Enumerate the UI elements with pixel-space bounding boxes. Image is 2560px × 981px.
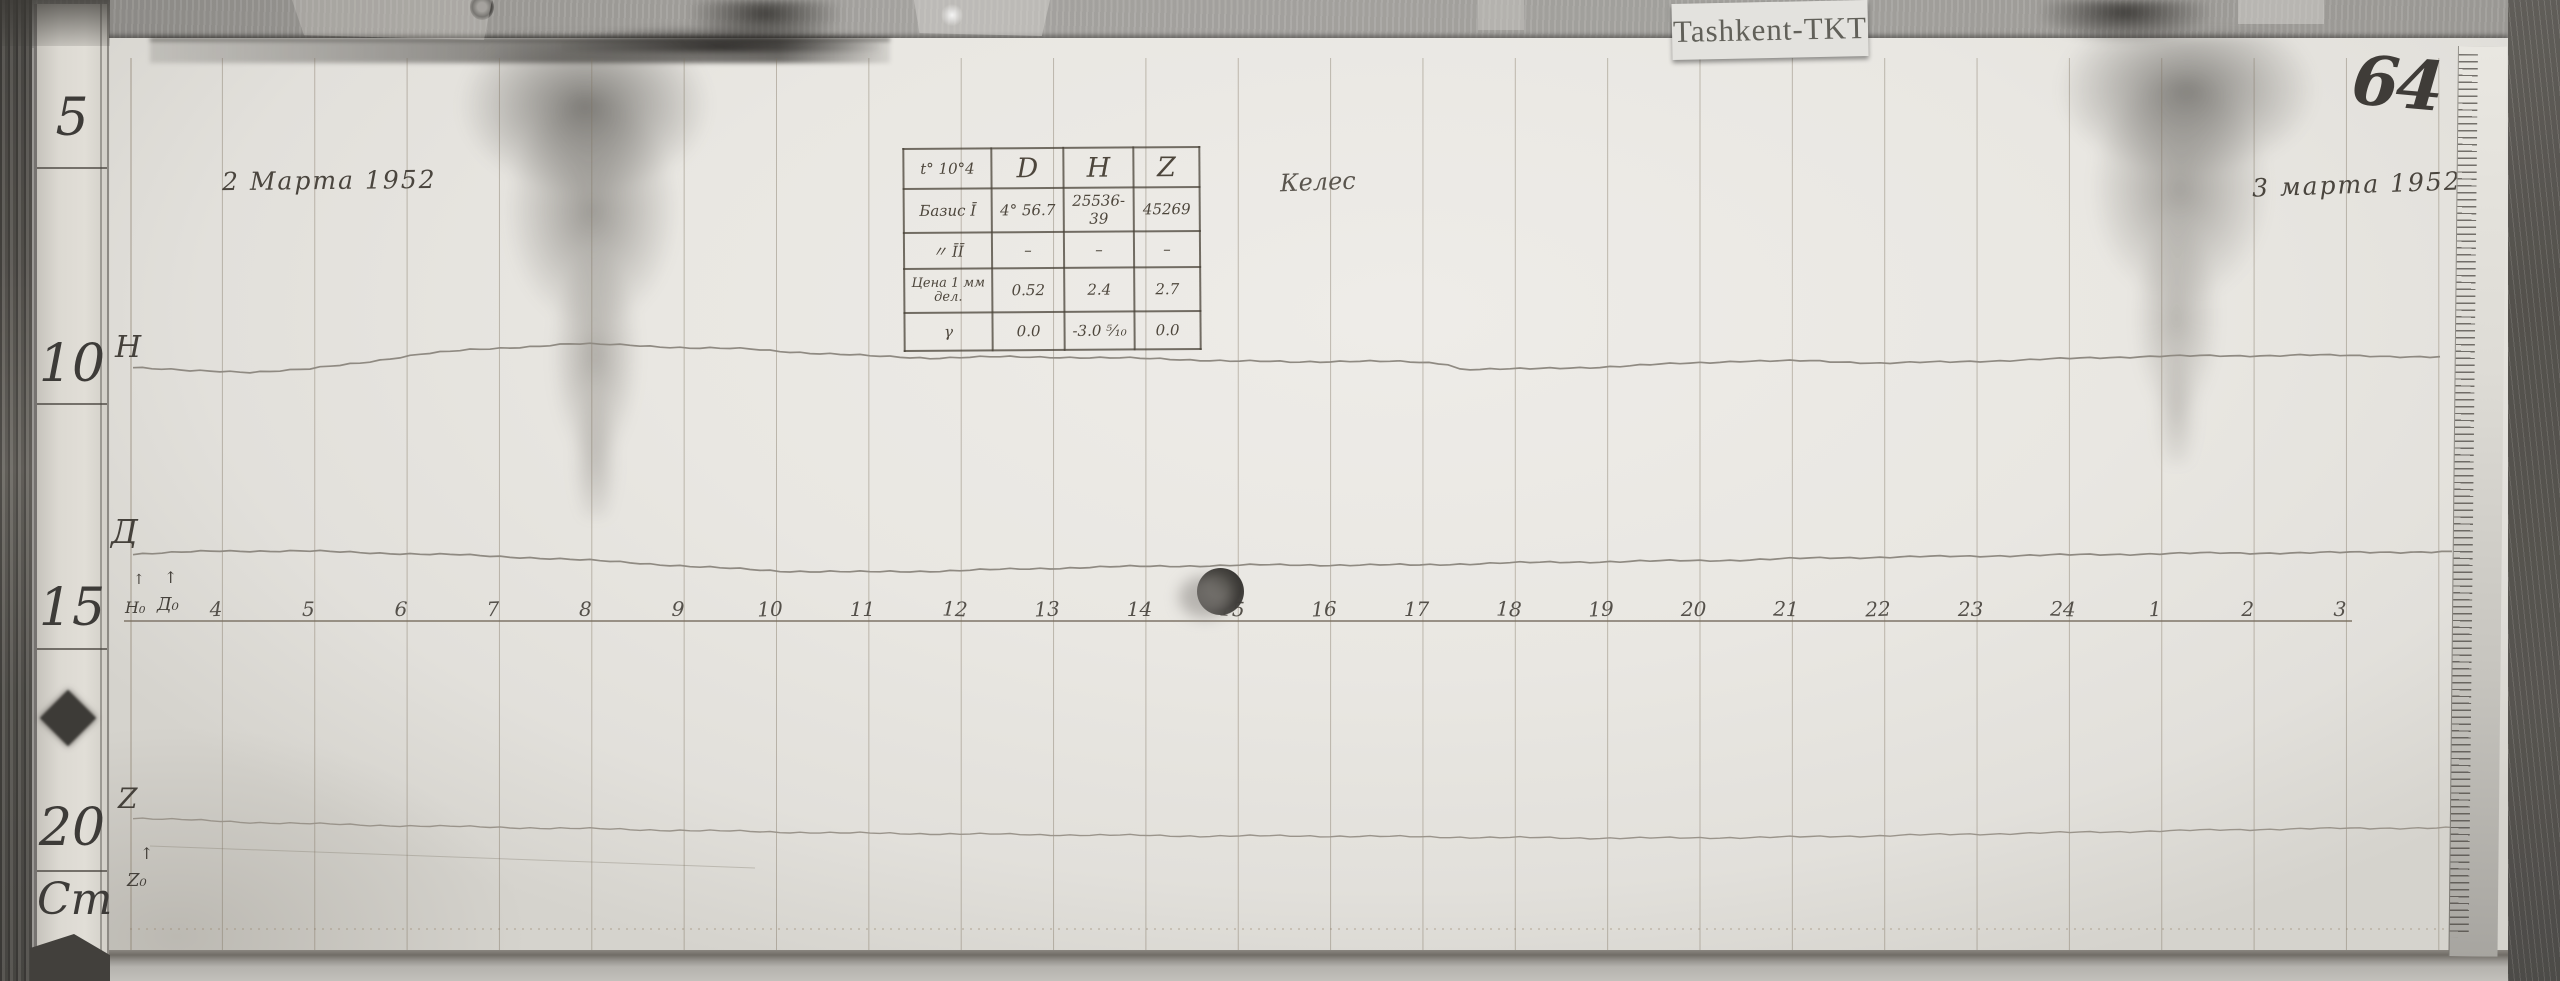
tape-piece bbox=[914, 0, 1050, 36]
d-base-label: Д₀ bbox=[157, 594, 179, 615]
h-base-label: Н₀ bbox=[125, 598, 145, 617]
row-label: 〃 ĪĪ bbox=[904, 232, 992, 269]
table-row: Цена 1 мм дел. 0.52 2.4 2.7 bbox=[904, 267, 1200, 313]
d-base-arrow-icon: ↑ bbox=[164, 568, 177, 587]
cell-z-base2: – bbox=[1134, 231, 1200, 267]
tape-piece bbox=[2238, 0, 2324, 24]
cell-h-corr: -3.0 ⁵⁄₁₀ bbox=[1064, 311, 1134, 349]
cell-d-base: 4° 56.7 bbox=[992, 188, 1064, 233]
top-left-shadow bbox=[0, 0, 110, 46]
ruler-segment-line bbox=[37, 870, 107, 872]
hour-label-7: 7 bbox=[471, 596, 516, 622]
wood-frame-left bbox=[0, 0, 32, 981]
hour-label-19: 19 bbox=[1579, 596, 1624, 622]
cell-z-base: 45269 bbox=[1134, 187, 1200, 231]
table-row: 〃 ĪĪ – – – bbox=[904, 231, 1200, 269]
hour-label-24: 24 bbox=[2041, 596, 2086, 622]
station-label-text: Tashkent-TKT bbox=[1673, 10, 1868, 50]
ruler-segment-line bbox=[37, 648, 107, 650]
hour-label-2: 2 bbox=[2226, 597, 2270, 621]
hour-label-16: 16 bbox=[1302, 596, 1347, 622]
ruler-segment-line bbox=[37, 403, 107, 405]
hour-label-8: 8 bbox=[563, 597, 607, 621]
cell-d-base2: – bbox=[992, 232, 1064, 269]
hour-label-6: 6 bbox=[378, 596, 423, 622]
station-name-handwritten: Келес bbox=[1280, 167, 1357, 198]
cell-d-corr: 0.0 bbox=[992, 312, 1064, 351]
hour-label-1: 1 bbox=[2133, 596, 2178, 622]
hour-label-20: 20 bbox=[1672, 597, 1716, 621]
header-cell-temp: t° 10°4 bbox=[903, 148, 991, 189]
punched-hole bbox=[1197, 568, 1244, 615]
hour-label-14: 14 bbox=[1118, 597, 1162, 621]
hour-label-17: 17 bbox=[1395, 597, 1439, 621]
row-label: γ bbox=[904, 312, 992, 351]
ruler-mark-10: 10 bbox=[37, 338, 107, 390]
z-base-label: Z₀ bbox=[127, 870, 147, 891]
right-mm-ruler bbox=[2448, 46, 2507, 956]
scanned-magnetogram-page: { "station_card": { "label": "Tashkent-T… bbox=[0, 0, 2560, 981]
z-trace-label: Z bbox=[118, 782, 137, 815]
hour-label-12: 12 bbox=[932, 596, 977, 622]
hour-label-23: 23 bbox=[1949, 597, 1993, 621]
row-label: Базис Ī bbox=[904, 188, 992, 233]
header-cell-z: Z bbox=[1133, 147, 1199, 187]
dark-stain-top bbox=[690, 0, 840, 46]
page-number: 64 bbox=[2349, 40, 2444, 127]
station-label-card: Tashkent-TKT bbox=[1671, 0, 1868, 60]
table-surface-bottom bbox=[0, 950, 2560, 981]
row-label: Цена 1 мм дел. bbox=[904, 268, 992, 313]
cell-h-scale: 2.4 bbox=[1064, 267, 1134, 311]
ruler-mark-Cm: Cm bbox=[37, 878, 107, 922]
header-cell-d: D bbox=[991, 148, 1063, 189]
cell-h-base: 25536-39 bbox=[1064, 187, 1134, 231]
hour-label-3: 3 bbox=[2318, 596, 2363, 622]
hour-label-18: 18 bbox=[1486, 596, 1531, 622]
hour-label-21: 21 bbox=[1764, 596, 1809, 622]
ruler-segment-line bbox=[37, 167, 107, 169]
table-row: γ 0.0 -3.0 ⁵⁄₁₀ 0.0 bbox=[904, 311, 1200, 351]
h-base-arrow-icon: ↑ bbox=[133, 572, 145, 588]
h-trace-label: Н bbox=[115, 330, 141, 365]
dark-stain-top bbox=[2040, 0, 2210, 42]
hour-label-13: 13 bbox=[1025, 596, 1070, 622]
cell-z-corr: 0.0 bbox=[1134, 311, 1200, 349]
cell-z-scale: 2.7 bbox=[1134, 267, 1200, 311]
header-cell-h: H bbox=[1063, 147, 1133, 187]
hour-label-11: 11 bbox=[840, 597, 884, 621]
cell-d-scale: 0.52 bbox=[992, 268, 1064, 313]
table-header-row: t° 10°4 D H Z bbox=[903, 147, 1199, 189]
d-trace-label: Д bbox=[111, 512, 138, 551]
ruler-mark-20: 20 bbox=[37, 802, 107, 854]
tape-piece bbox=[1478, 0, 1524, 30]
hour-label-10: 10 bbox=[748, 596, 793, 622]
hour-label-9: 9 bbox=[655, 596, 700, 622]
hour-label-22: 22 bbox=[1856, 596, 1901, 622]
left-cm-ruler: 5101520Cm bbox=[34, 4, 109, 958]
tape-piece bbox=[292, 0, 492, 40]
z-base-arrow-icon: ↑ bbox=[140, 844, 153, 863]
cell-h-base2: – bbox=[1064, 231, 1134, 267]
base-values-table: t° 10°4 D H Z Базис Ī 4° 56.7 25536-39 4… bbox=[902, 146, 1201, 352]
ruler-mark-15: 15 bbox=[37, 582, 107, 634]
table-row: Базис Ī 4° 56.7 25536-39 45269 bbox=[904, 187, 1200, 233]
wood-frame-right bbox=[2508, 0, 2560, 981]
ruler-mark-5: 5 bbox=[37, 92, 107, 144]
hour-label-4: 4 bbox=[194, 596, 239, 622]
date-left: 2 Марта 1952 bbox=[222, 165, 437, 196]
hour-label-5: 5 bbox=[286, 597, 330, 621]
